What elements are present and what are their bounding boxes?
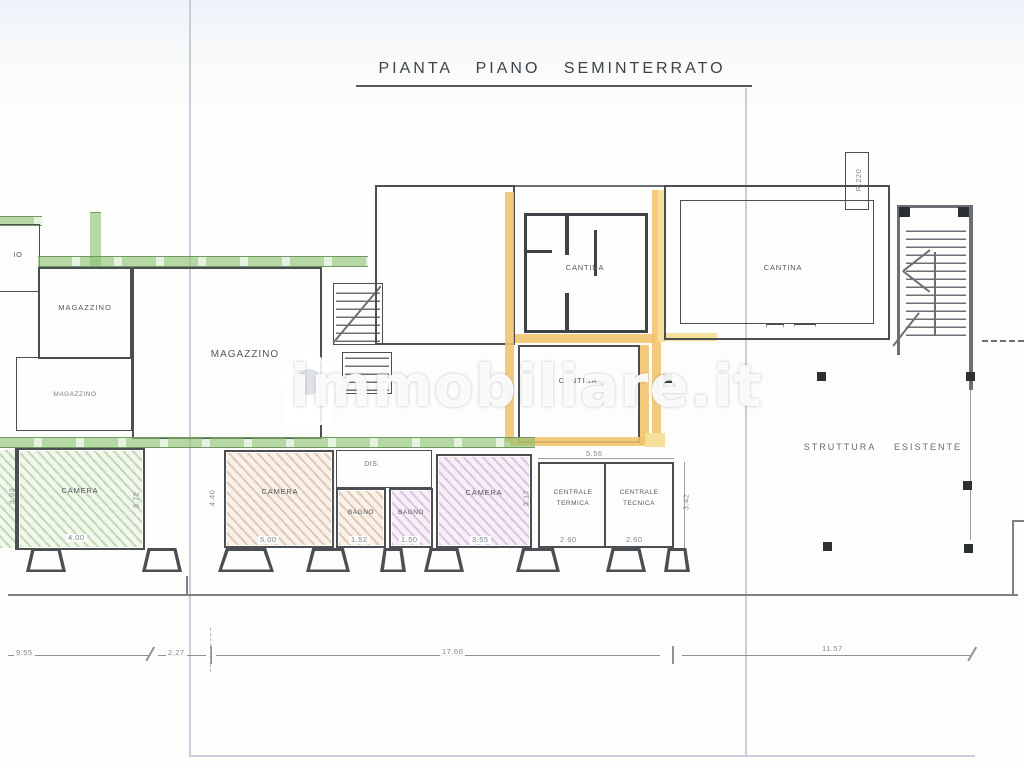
dimension: 1.50	[399, 536, 420, 544]
pillar-marker	[964, 544, 973, 553]
dimension: 3.17	[522, 488, 530, 509]
pillar-marker	[958, 207, 969, 217]
boundary-line	[970, 390, 971, 540]
stair-wall	[969, 205, 973, 390]
buttress	[142, 548, 182, 572]
buttress	[664, 548, 690, 572]
room-label: CANTINA	[528, 376, 628, 385]
room-label: CAMERA	[240, 487, 320, 496]
wall-stub	[565, 213, 569, 255]
dimension: 4.40	[208, 488, 216, 509]
wall-highlight-green	[38, 256, 368, 267]
pillar-marker	[963, 481, 972, 490]
room-label: CENTRALE	[544, 489, 602, 496]
dimension: 2.60	[624, 536, 645, 544]
room-label: MAGAZZINO	[48, 303, 122, 312]
page-title: PIANTA PIANO SEMINTERRATO	[312, 60, 792, 78]
room-cantina-lower	[518, 345, 640, 443]
room-label: BAGNO	[337, 509, 385, 516]
wall-highlight-green	[0, 437, 535, 448]
buttress	[380, 548, 406, 572]
room-label: TECNICA	[608, 500, 670, 507]
slab-edge-line	[8, 594, 1018, 596]
reference-line	[210, 628, 211, 672]
wall-highlight-orange	[640, 345, 649, 445]
stair-wall	[897, 205, 900, 355]
room-label: CAMERA	[448, 488, 520, 497]
dimension: 3.72	[132, 490, 140, 511]
dimension-tick	[145, 647, 154, 662]
dimension: 5.56	[584, 450, 605, 458]
wall-line	[604, 464, 606, 546]
buttress	[606, 548, 646, 572]
wall-highlight-orange	[515, 334, 655, 343]
buttress	[218, 548, 274, 572]
dimension: 1.52	[349, 536, 370, 544]
wall-highlight-yellow	[645, 433, 665, 447]
boundary-line	[1012, 520, 1014, 596]
room-label: BAGNO	[389, 509, 433, 516]
buttress	[516, 548, 560, 572]
buttress	[26, 548, 66, 572]
room-label: CANTINA	[728, 263, 838, 272]
slab-edge-step	[186, 576, 188, 596]
wall-line	[515, 185, 665, 187]
wall-highlight-orange	[505, 192, 514, 442]
dimension-tick	[967, 647, 976, 662]
room-label: TERMICA	[544, 500, 602, 507]
annotation: STRUTTURA	[797, 442, 883, 452]
room-label: DIS.	[352, 461, 392, 468]
room-label: CANTINA	[540, 263, 630, 272]
dimension-tick	[672, 646, 674, 664]
annotation: ESISTENTE	[888, 442, 968, 452]
buttress	[306, 548, 350, 572]
pillar-marker	[817, 372, 826, 381]
pillar-marker	[966, 372, 975, 381]
wall-stub	[565, 293, 569, 333]
wall-stub	[524, 250, 552, 253]
room-fill	[439, 457, 529, 545]
room-label: CENTRALE	[608, 489, 670, 496]
boundary-line	[1012, 520, 1024, 522]
room-disimpegno	[336, 450, 432, 488]
room-label: MAGAZZINO	[185, 349, 305, 360]
room-magazzino-1	[38, 267, 132, 359]
dimension: 5.00	[258, 536, 279, 544]
stair-treads	[345, 355, 389, 391]
dimension-line	[538, 458, 674, 459]
room-cantina-right-inner	[680, 200, 874, 324]
dimension: 2.60	[558, 536, 579, 544]
pillar-marker	[899, 207, 910, 217]
dimension-line	[216, 655, 660, 656]
dimension: 3.93	[8, 486, 16, 507]
dimension-line	[682, 655, 970, 656]
room-central-hall	[375, 185, 515, 345]
room-label: IO	[4, 250, 32, 259]
sheet-edge-line	[189, 755, 975, 757]
dimension: 9.55	[14, 649, 35, 657]
stair-stringer	[934, 252, 936, 336]
shaft-label: R.220	[855, 163, 863, 197]
dimension: 2.27	[166, 649, 187, 657]
dashed-wall	[982, 340, 1024, 342]
room-label: CAMERA	[30, 486, 130, 495]
floor-plan: PIANTA PIANO SEMINTERRATO IO MAGAZZINO M…	[0, 0, 1024, 768]
dimension: 17.60	[440, 648, 465, 656]
stair-treads	[906, 228, 966, 336]
dimension: 3.42	[682, 492, 690, 513]
title-underline	[356, 85, 752, 87]
room-label: MAGAZZINO	[40, 391, 110, 398]
dimension: 4.00	[66, 534, 87, 542]
buttress	[424, 548, 464, 572]
dimension: 3.55	[470, 536, 491, 544]
pillar-marker	[663, 374, 672, 383]
room-cantina-upper	[524, 213, 648, 333]
pillar-marker	[823, 542, 832, 551]
dimension: 11.57	[820, 645, 845, 653]
room-fill	[227, 453, 331, 545]
